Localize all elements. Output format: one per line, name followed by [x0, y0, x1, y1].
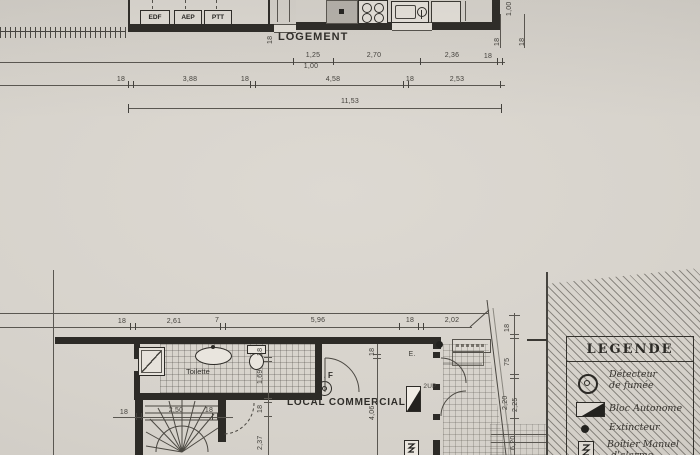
- dim-label: 2,20: [502, 396, 509, 410]
- wall: [433, 352, 440, 358]
- washbasin-faucet: [211, 345, 215, 349]
- aep-box: AEP: [174, 10, 202, 25]
- burner: [374, 13, 384, 23]
- dim-tick: [510, 378, 519, 379]
- washbasin-icon: [195, 347, 232, 365]
- legend-box: LEGENDE Détecteur de fumée Bloc Autonome…: [566, 336, 694, 455]
- smoke-detector-icon: [578, 374, 598, 394]
- step-line: [491, 434, 547, 435]
- faucet: [421, 10, 422, 19]
- toilette-label: Toilette: [186, 367, 210, 376]
- kitchen-sink-icon: [391, 1, 429, 23]
- wall: [128, 24, 274, 32]
- wall-line: [289, 0, 290, 22]
- counter-line: [465, 1, 466, 21]
- dim-label: 75: [504, 358, 511, 366]
- dim-tick: [373, 358, 381, 359]
- dim-label: 3,88: [183, 76, 197, 83]
- dim-tick: [135, 323, 136, 330]
- dim-tick: [225, 323, 226, 330]
- burner: [362, 3, 372, 13]
- edf-box: EDF: [140, 10, 170, 25]
- dim-label: 4,06: [369, 406, 376, 420]
- dim-tick: [399, 323, 400, 330]
- up-label: 2UP: [423, 383, 436, 390]
- edf-label: EDF: [149, 14, 162, 21]
- zigzag-glyph: [579, 442, 593, 455]
- dim-label: 18: [257, 405, 264, 413]
- dim-label: 2,25: [512, 398, 519, 412]
- legend-item-label: Détecteur de fumée: [609, 369, 657, 391]
- dim-label: 18: [519, 38, 526, 46]
- dim-tick: [220, 323, 221, 330]
- dim-tick: [264, 416, 272, 417]
- dim-label: 5,96: [311, 317, 325, 324]
- dim-tick: [293, 58, 294, 65]
- wall-end-mark: [527, 339, 547, 341]
- ptt-box: PTT: [204, 10, 232, 25]
- smoke-detector-inner: [322, 386, 327, 391]
- dim-line: [113, 417, 233, 418]
- dim-label: 2,53: [450, 76, 464, 83]
- dim-tick: [264, 361, 272, 362]
- logement-label: LOGEMENT: [278, 31, 348, 43]
- dim-tick: [510, 418, 519, 419]
- legend-item-label: Extincteur: [609, 422, 660, 433]
- dim-line: [377, 344, 378, 455]
- utility-dashed-line: [185, 0, 186, 9]
- dim-label: 18: [369, 348, 376, 356]
- ptt-label: PTT: [212, 14, 224, 21]
- dim-label: 18: [117, 76, 125, 83]
- dim-tick: [403, 81, 404, 88]
- dim-label: 18: [120, 409, 128, 416]
- dim-line: [128, 108, 502, 109]
- legend-item-line: Boîtier Manuel: [607, 439, 679, 450]
- utility-dashed-line: [216, 0, 217, 9]
- dim-label: 2,70: [367, 52, 381, 59]
- dim-tick: [420, 58, 421, 65]
- wall: [55, 337, 433, 344]
- dim-tick: [510, 374, 519, 375]
- dim-line: [0, 327, 472, 328]
- plan-line: [0, 313, 488, 314]
- dim-label: 1,00: [304, 63, 318, 70]
- dim-label: 2,61: [167, 318, 181, 325]
- sink-basin: [395, 5, 416, 19]
- df-label: D.F: [316, 371, 335, 380]
- dim-label: 18: [118, 318, 126, 325]
- bloc-autonome-symbol: [406, 386, 421, 412]
- alarm-box-icon: [578, 441, 594, 455]
- dim-label: 18: [205, 407, 213, 414]
- dim-label: 18: [494, 38, 501, 46]
- legend-item-label: Boîtier Manuel d'alarme: [607, 439, 679, 455]
- wall: [135, 400, 143, 455]
- dim-tick: [509, 315, 520, 316]
- scanned-floor-plan: EDF AEP PTT 1,00 18 18 18 LOGEMENT 1,25: [0, 0, 700, 455]
- burner: [362, 13, 372, 23]
- boundary-line: [546, 272, 548, 455]
- dim-label: 18: [267, 36, 274, 44]
- extincteur-icon: [581, 425, 589, 433]
- sink-drain: [417, 7, 427, 17]
- dim-tick: [333, 58, 334, 65]
- e-label: E.: [408, 351, 415, 358]
- dim-tick: [510, 338, 519, 339]
- dim-tick: [423, 323, 424, 330]
- dim-label: 1,69: [257, 370, 264, 384]
- porch-floor: [490, 424, 546, 455]
- wall: [492, 0, 500, 30]
- dim-label: 2,02: [445, 317, 459, 324]
- dim-label: 1,25: [306, 52, 320, 59]
- smoke-detector-inner: [584, 380, 590, 386]
- wall-line: [277, 0, 278, 22]
- dim-label: 18: [257, 348, 264, 356]
- stove-icon: [358, 0, 388, 24]
- dim-tick: [250, 81, 251, 88]
- dim-tick: [264, 398, 272, 399]
- dim-label: 2,36: [445, 52, 459, 59]
- wall: [433, 414, 440, 420]
- washing-machine-dot: [339, 9, 344, 14]
- bloc-autonome-icon: [576, 402, 605, 417]
- dim-label: 18: [241, 76, 249, 83]
- legend-item-line: d'alarme: [607, 450, 679, 455]
- local-commercial-label: LOCAL COMMERCIAL: [287, 397, 406, 408]
- dim-label: 18: [406, 317, 414, 324]
- burner: [374, 3, 384, 13]
- boundary-hatch-band: [0, 27, 126, 38]
- dim-label: 18: [406, 76, 414, 83]
- dim-label: 7: [215, 317, 219, 324]
- smoke-detector-symbol: [317, 381, 332, 396]
- bloc-autonome-fill: [407, 387, 420, 411]
- dim-tick: [497, 58, 498, 65]
- legend-item-line: Détecteur: [609, 369, 657, 380]
- dim-label: 4,58: [326, 76, 340, 83]
- dim-tick: [136, 413, 137, 420]
- dim-tick: [128, 104, 129, 113]
- dim-label: 18: [504, 324, 511, 332]
- zigzag-glyph: [405, 441, 418, 455]
- shower-icon: [138, 347, 165, 376]
- aep-label: AEP: [181, 14, 194, 21]
- fridge-icon: [431, 1, 461, 23]
- wall: [432, 22, 500, 30]
- legend-title: LEGENDE: [586, 342, 673, 357]
- dim-label: 2,50: [169, 407, 183, 414]
- dim-tick: [130, 323, 131, 330]
- dim-label: 1,00: [506, 2, 513, 16]
- dim-tick: [133, 81, 134, 88]
- dim-tick: [418, 323, 419, 330]
- legend-item-line: Extincteur: [609, 422, 660, 433]
- dim-tick: [255, 81, 256, 88]
- dim-tick: [510, 334, 519, 335]
- window-gap: [392, 22, 432, 31]
- wall: [433, 440, 440, 455]
- bloc-autonome-fill: [577, 403, 604, 416]
- dim-tick: [500, 81, 501, 88]
- dim-label: 18: [484, 53, 492, 60]
- shower-pan: [141, 350, 162, 373]
- dim-tick: [502, 58, 503, 65]
- step-line: [491, 442, 547, 443]
- alarm-box-symbol: [404, 440, 419, 455]
- boundary-line: [53, 270, 54, 455]
- dim-label: 2,37: [257, 436, 264, 450]
- dim-tick: [128, 81, 129, 88]
- legend-item-line: de fumée: [609, 380, 657, 391]
- dim-tick: [141, 413, 142, 420]
- legend-item-line: Bloc Autonome: [609, 403, 682, 414]
- wall: [218, 400, 226, 442]
- dim-tick: [264, 357, 272, 358]
- dim-label: 6,20: [510, 436, 517, 450]
- legend-item-label: Bloc Autonome: [609, 403, 682, 414]
- dim-label: 11,53: [341, 98, 359, 105]
- dim-tick: [501, 104, 502, 113]
- toilette-floor: [160, 344, 315, 393]
- dim-tick: [217, 413, 218, 420]
- dim-line: [0, 85, 505, 86]
- extincteur-symbol: [436, 341, 443, 348]
- dim-tick: [264, 402, 272, 403]
- legend-header: LEGENDE: [567, 337, 693, 362]
- dim-tick: [212, 413, 213, 420]
- utility-dashed-line: [152, 0, 153, 9]
- dim-line: [0, 62, 505, 63]
